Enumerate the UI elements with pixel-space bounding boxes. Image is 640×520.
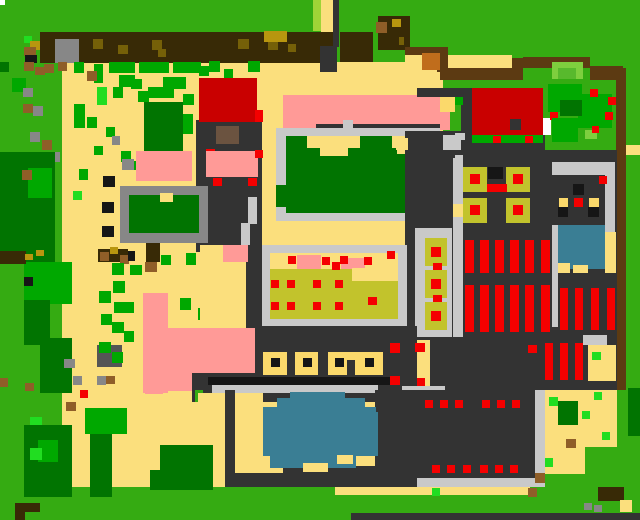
map-rect: [513, 205, 523, 215]
map-rect: [264, 31, 287, 42]
map-rect: [558, 401, 578, 425]
map-rect: [455, 97, 463, 105]
map-rect: [528, 345, 537, 353]
map-rect: [443, 135, 461, 150]
map-rect: [493, 136, 501, 143]
map-rect: [87, 71, 97, 81]
map-rect: [209, 61, 220, 72]
map-rect: [582, 411, 590, 419]
awning: [206, 151, 258, 177]
map-rect: [303, 463, 328, 472]
map-rect: [288, 44, 296, 52]
map-rect: [575, 288, 583, 330]
map-rect: [114, 302, 134, 313]
east-fence: [616, 68, 626, 390]
map-rect: [113, 87, 123, 98]
map-rect: [558, 68, 576, 79]
map-rect: [85, 408, 127, 434]
map-rect: [320, 148, 348, 156]
map-rect: [512, 58, 523, 80]
map-rect: [543, 118, 551, 135]
map-rect: [44, 64, 54, 73]
map-rect: [97, 87, 107, 105]
map-rect: [161, 255, 171, 265]
map-rect: [180, 298, 191, 310]
map-rect: [626, 145, 640, 155]
map-rect: [235, 390, 263, 474]
map-rect: [480, 465, 488, 473]
map-rect: [272, 448, 280, 457]
map-rect: [58, 62, 67, 71]
map-rect: [25, 383, 34, 391]
map-rect: [276, 185, 286, 207]
map-rect: [583, 335, 607, 345]
map-rect: [112, 352, 123, 363]
map-rect: [0, 62, 9, 72]
map-rect: [455, 400, 463, 408]
map-rect: [36, 250, 44, 256]
map-rect: [94, 146, 103, 155]
map-rect: [560, 288, 568, 330]
map-rect: [24, 62, 34, 71]
map-rect: [535, 390, 545, 480]
map-rect: [248, 178, 257, 186]
map-rect: [545, 343, 553, 380]
map-rect: [208, 377, 392, 385]
map-rect: [578, 94, 612, 128]
map-rect: [552, 225, 558, 327]
map-rect: [390, 343, 400, 353]
map-rect: [487, 184, 507, 192]
map-rect: [333, 0, 339, 47]
map-rect: [535, 473, 545, 483]
map-rect: [541, 240, 550, 273]
map-rect: [255, 110, 263, 122]
map-rect: [592, 126, 599, 133]
map-rect: [238, 39, 249, 49]
map-rect: [313, 302, 321, 310]
map-rect: [73, 376, 82, 385]
map-rect: [183, 94, 194, 105]
map-rect: [541, 285, 550, 332]
map-rect: [510, 285, 519, 332]
map-rect: [431, 247, 441, 257]
building-west: [199, 78, 257, 122]
building-north: [472, 88, 543, 135]
map-rect: [347, 360, 355, 375]
map-rect: [574, 198, 583, 207]
map-rect: [396, 138, 408, 150]
map-rect: [138, 91, 149, 102]
map-rect: [432, 465, 440, 473]
map-rect: [417, 478, 545, 487]
map-rect: [432, 488, 440, 496]
map-rect: [628, 388, 640, 436]
map-rect: [112, 322, 124, 333]
map-rect: [620, 500, 632, 512]
map-rect: [440, 97, 455, 112]
map-rect: [440, 400, 448, 408]
map-rect: [425, 400, 433, 408]
map-rect: [376, 22, 387, 33]
map-rect: [440, 68, 513, 80]
map-rect: [594, 505, 602, 512]
map-rect: [512, 400, 520, 408]
map-rect: [495, 465, 503, 473]
stone-block: [55, 39, 79, 63]
map-rect: [97, 376, 106, 385]
map-rect: [488, 167, 503, 179]
map-rect: [101, 314, 112, 325]
pink-yard: [136, 151, 192, 181]
map-rect: [225, 390, 235, 487]
map-rect: [271, 302, 279, 310]
map-rect: [480, 285, 489, 332]
map-rect: [513, 174, 523, 184]
map-rect: [364, 257, 372, 265]
map-rect: [35, 67, 45, 75]
map-rect: [495, 285, 504, 332]
map-rect: [112, 263, 124, 275]
map-rect: [271, 280, 279, 288]
map-rect: [183, 114, 193, 134]
map-rect: [525, 136, 533, 143]
map-rect: [465, 285, 474, 332]
map-rect: [320, 46, 337, 72]
map-rect: [145, 262, 157, 272]
post-2: [102, 202, 114, 213]
map-rect: [80, 390, 88, 398]
map-rect: [335, 358, 344, 367]
map-rect: [447, 465, 455, 473]
map-rect: [73, 191, 82, 200]
map-rect: [131, 79, 142, 89]
map-rect: [602, 432, 610, 440]
map-rect: [113, 281, 125, 293]
map-rect: [588, 345, 616, 381]
south-bush: [160, 445, 213, 490]
crop-row: [465, 240, 474, 273]
center-bush: [144, 102, 183, 151]
map-rect: [599, 176, 607, 184]
map-rect: [109, 62, 135, 73]
map-rect: [213, 178, 222, 186]
map-rect: [87, 117, 97, 128]
map-rect: [337, 455, 353, 464]
map-rect: [246, 245, 262, 330]
map-rect: [335, 280, 343, 288]
map-rect: [463, 465, 471, 473]
map-rect: [591, 288, 599, 330]
map-rect: [112, 136, 120, 145]
map-rect: [510, 240, 519, 273]
map-rect: [588, 207, 599, 217]
map-rect: [445, 55, 512, 68]
map-rect: [594, 392, 602, 400]
map-rect: [150, 470, 162, 490]
map-rect: [124, 331, 134, 342]
map-rect: [605, 112, 613, 120]
map-rect: [332, 262, 340, 270]
map-rect: [558, 207, 568, 217]
map-rect: [277, 398, 365, 407]
map-rect: [271, 358, 280, 367]
map-rect: [340, 256, 348, 264]
map-rect: [525, 240, 534, 273]
map-rect: [575, 343, 583, 380]
map-rect: [30, 132, 40, 142]
map-rect: [42, 140, 52, 150]
map-rect: [605, 232, 616, 273]
map-rect: [352, 268, 398, 281]
map-rect: [368, 297, 377, 305]
map-rect: [303, 358, 312, 367]
map-rect: [592, 352, 601, 360]
map-rect: [590, 89, 598, 97]
map-rect: [99, 342, 111, 353]
map-rect: [392, 19, 401, 27]
map-rect: [90, 430, 112, 497]
map-rect: [148, 87, 174, 98]
map-rect: [100, 252, 109, 261]
map-rect: [223, 245, 248, 262]
map-rect: [497, 400, 505, 408]
map-rect: [160, 193, 173, 202]
map-rect: [74, 62, 84, 73]
map-rect: [482, 400, 490, 408]
post-3: [102, 226, 114, 237]
map-rect: [525, 285, 534, 332]
map-rect: [433, 263, 442, 270]
map-rect: [549, 397, 558, 406]
map-rect: [30, 448, 42, 460]
map-rect: [415, 343, 425, 352]
map-rect: [0, 251, 26, 264]
map-rect: [431, 279, 441, 289]
map-rect: [122, 159, 134, 170]
map-rect: [24, 277, 33, 286]
map-rect: [584, 503, 592, 510]
map-rect: [560, 343, 568, 380]
map-rect: [255, 150, 263, 158]
map-rect: [560, 100, 582, 116]
map-rect: [276, 128, 286, 221]
map-rect: [313, 280, 321, 288]
map-rect: [287, 302, 295, 310]
map-rect: [313, 0, 321, 31]
map-rect: [495, 240, 504, 273]
map-rect: [110, 247, 118, 254]
map-rect: [552, 118, 578, 142]
map-rect: [365, 358, 374, 367]
map-rect: [0, 378, 8, 387]
map-rect: [510, 465, 518, 473]
map-rect: [199, 66, 209, 76]
map-rect: [404, 22, 408, 47]
map-rect: [93, 39, 103, 49]
map-rect: [566, 439, 576, 448]
map-rect: [186, 253, 196, 265]
map-rect: [25, 254, 33, 260]
map-rect: [74, 104, 85, 128]
map-rect: [431, 311, 441, 321]
map-rect: [545, 458, 553, 467]
map-rect: [470, 205, 480, 215]
map-rect: [235, 473, 417, 487]
map-rect: [433, 295, 442, 302]
map-rect: [168, 328, 255, 373]
map-rect: [99, 291, 111, 303]
game-map[interactable]: [0, 0, 640, 520]
map-rect: [128, 251, 135, 261]
crate: [216, 126, 239, 144]
map-rect: [130, 265, 142, 275]
map-rect: [528, 488, 537, 497]
map-rect: [480, 240, 489, 273]
map-rect: [368, 412, 378, 456]
pink-path: [143, 293, 168, 393]
map-rect: [453, 204, 463, 217]
map-rect: [33, 106, 43, 116]
map-rect: [173, 62, 201, 73]
map-rect: [118, 45, 128, 54]
map-rect: [340, 32, 373, 62]
map-rect: [573, 265, 588, 273]
map-rect: [351, 513, 640, 520]
map-rect: [608, 97, 616, 105]
map-rect: [23, 104, 33, 113]
map-rect: [417, 378, 425, 386]
map-rect: [552, 162, 615, 175]
map-rect: [470, 174, 480, 184]
map-rect: [158, 49, 166, 57]
map-rect: [387, 251, 395, 259]
map-rect: [307, 136, 360, 148]
map-rect: [335, 302, 343, 310]
center-walk: [453, 158, 463, 337]
map-rect: [23, 88, 33, 97]
map-rect: [15, 511, 25, 520]
map-rect: [145, 390, 163, 394]
map-rect: [288, 256, 296, 264]
map-rect: [322, 257, 330, 265]
cursor-dot: [0, 0, 5, 5]
map-rect: [585, 447, 640, 487]
map-rect: [248, 61, 260, 72]
map-rect: [106, 376, 115, 384]
post-1: [103, 176, 115, 187]
map-rect: [287, 280, 295, 288]
map-rect: [558, 263, 570, 273]
map-rect: [139, 62, 169, 73]
map-rect: [66, 402, 76, 411]
window: [510, 119, 521, 130]
map-rect: [607, 288, 615, 330]
map-rect: [64, 359, 75, 368]
map-rect: [22, 170, 32, 180]
planter-box: [422, 53, 440, 70]
map-rect: [248, 197, 257, 224]
map-rect: [79, 169, 88, 180]
map-rect: [573, 184, 584, 195]
map-rect: [390, 376, 400, 385]
